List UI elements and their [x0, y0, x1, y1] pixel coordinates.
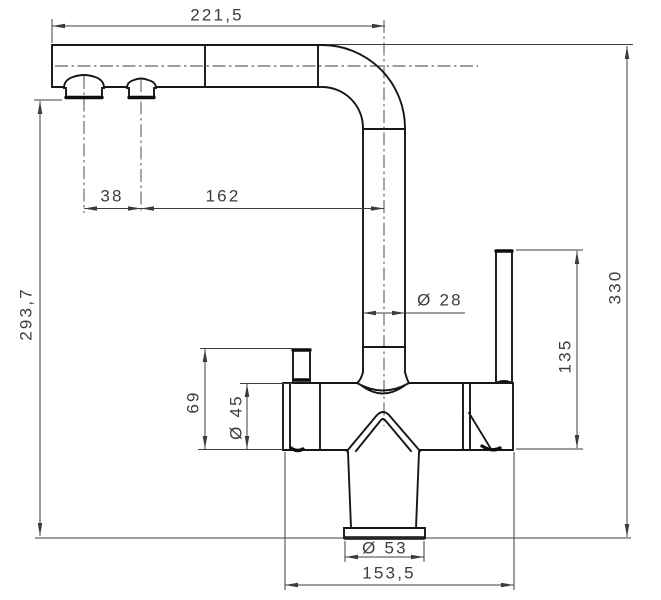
filter-outlet-path — [127, 79, 156, 98]
side-lever-path — [293, 351, 310, 383]
handle-lever-path — [496, 252, 512, 383]
dimension-lines — [40, 26, 627, 585]
spout-bend-path — [322, 45, 405, 129]
base-transition-path — [347, 412, 420, 451]
dim-label-base-diameter: Ø 53 — [362, 540, 408, 557]
dim-label-lever-height: 135 — [557, 339, 574, 374]
mixer-body-path — [283, 383, 513, 450]
riser-saddle-path — [357, 383, 409, 394]
side-lever-cap — [293, 350, 310, 380]
extension-lines — [34, 19, 633, 590]
centerlines — [55, 20, 478, 426]
dim-label-side-outlet-height: 69 — [185, 390, 202, 413]
technical-drawing-canvas: 221,5 38 162 Ø 28 293,7 330 135 69 Ø 45 … — [0, 0, 661, 600]
riser-pipe-path — [357, 129, 409, 383]
dim-label-spout-reach: 221,5 — [190, 7, 244, 24]
base-column-path — [348, 452, 419, 528]
dim-label-outlet-spacing: 38 — [100, 188, 123, 205]
body-left-seam — [291, 448, 303, 451]
dimension-arrowheads — [38, 24, 630, 588]
dim-label-overall-height: 330 — [607, 270, 624, 305]
dim-label-spout-height: 293,7 — [18, 287, 35, 341]
dim-label-base-length: 153,5 — [362, 565, 416, 582]
dim-label-outlet-to-riser: 162 — [206, 188, 241, 205]
dim-label-body-diameter: Ø 45 — [228, 394, 245, 440]
dim-label-riser-diameter: Ø 28 — [417, 292, 463, 309]
faucet-drawing-svg — [0, 0, 661, 600]
